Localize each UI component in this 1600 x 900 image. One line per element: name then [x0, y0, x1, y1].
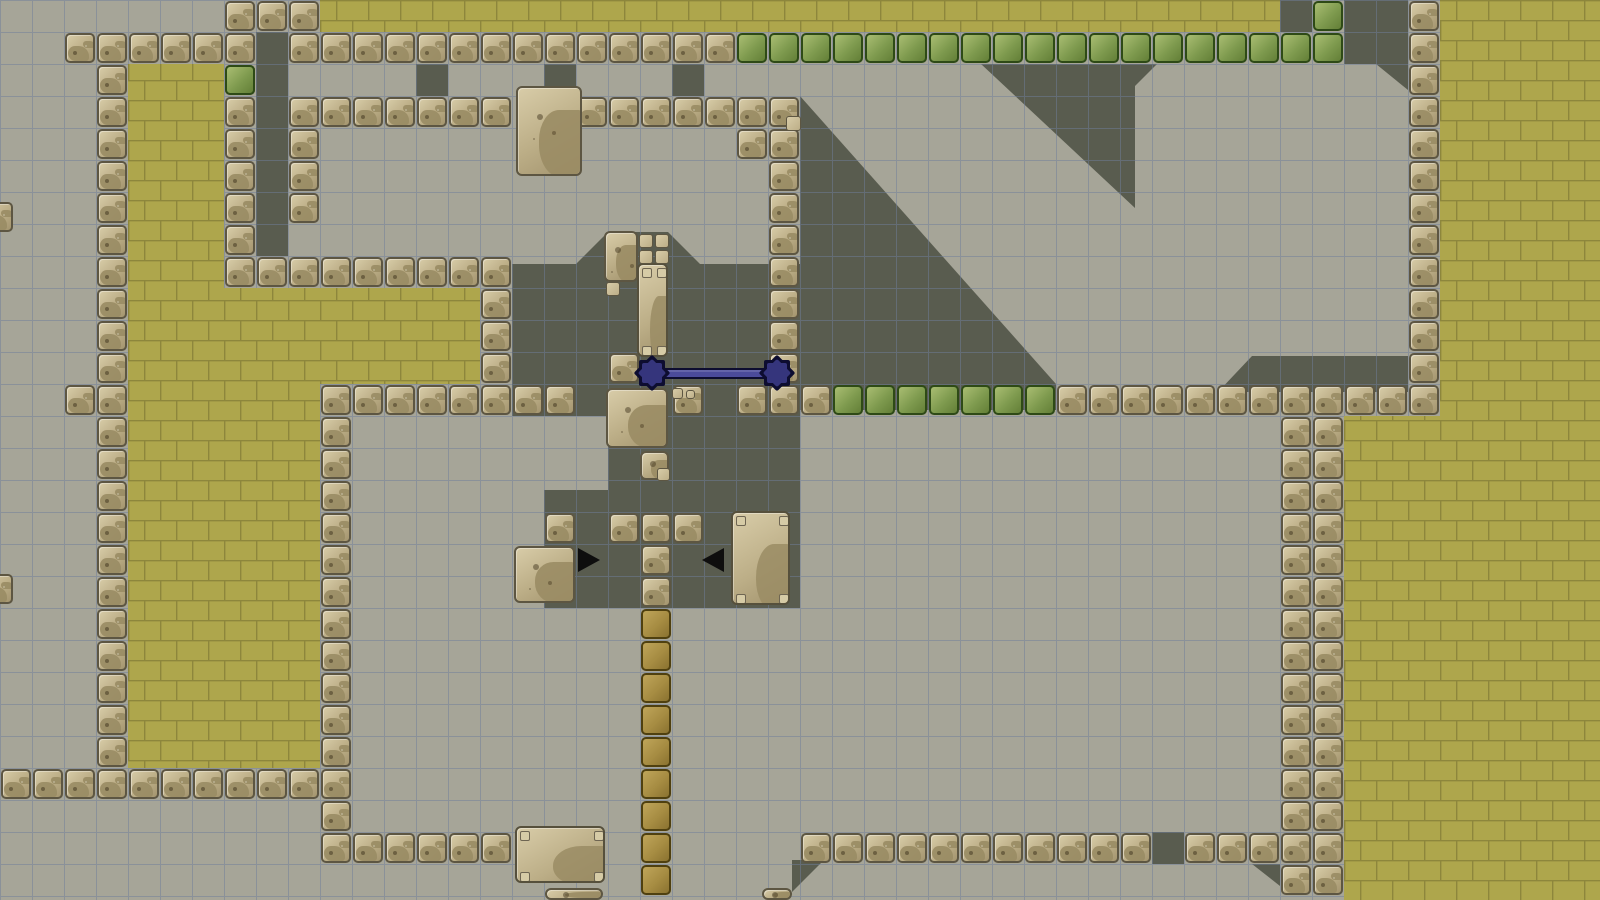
stone-tile [801, 833, 831, 863]
stone-tile [97, 513, 127, 543]
stone-tile [705, 33, 735, 63]
stone-tile [97, 161, 127, 191]
laser-anchor-core [642, 363, 662, 383]
stone-tile [161, 33, 191, 63]
stone-tile [1281, 417, 1311, 447]
stone-tile [257, 1, 287, 31]
stone-tile [1313, 577, 1343, 607]
green-tile [897, 385, 927, 415]
stone-tile [1409, 65, 1439, 95]
stone-tile [1249, 385, 1279, 415]
stone-tile [97, 737, 127, 767]
stone-tile [577, 33, 607, 63]
riveted-panel [637, 263, 668, 357]
rivet [520, 831, 530, 841]
stone-tile [481, 257, 511, 287]
stone-tile [385, 257, 415, 287]
green-tile [865, 33, 895, 63]
stone-tile [289, 769, 319, 799]
laser-anchor-core [767, 363, 787, 383]
stone-tile [641, 513, 671, 543]
rivet [657, 346, 667, 356]
green-tile [1185, 33, 1215, 63]
stone-tile [321, 737, 351, 767]
stone-tile [513, 385, 543, 415]
stone-tile [1313, 865, 1343, 895]
stone-tile [1281, 513, 1311, 543]
stone-tile [449, 33, 479, 63]
stone-tile [1185, 833, 1215, 863]
green-tile [961, 385, 991, 415]
stone-tile [33, 769, 63, 799]
stone-tile [65, 769, 95, 799]
stone-tile [769, 385, 799, 415]
stone-tile [1281, 801, 1311, 831]
stone-tile [1249, 833, 1279, 863]
stone-tile [1345, 385, 1375, 415]
stone-tile [385, 33, 415, 63]
stone-tile [353, 33, 383, 63]
stone-tile [321, 801, 351, 831]
stone-tile [993, 833, 1023, 863]
stone-tile [769, 161, 799, 191]
stone-tile [1409, 321, 1439, 351]
stone-tile [1313, 417, 1343, 447]
stone-tile [1313, 481, 1343, 511]
stone-tile [353, 257, 383, 287]
stone-tile [1313, 769, 1343, 799]
stone-tile [385, 385, 415, 415]
green-tile [737, 33, 767, 63]
green-tile [225, 65, 255, 95]
green-tile [769, 33, 799, 63]
gold-tile [641, 833, 671, 863]
stone-tile [1313, 449, 1343, 479]
stone-tile [1153, 385, 1183, 415]
stone-tile [65, 385, 95, 415]
stone-tile [321, 577, 351, 607]
green-tile [1057, 33, 1087, 63]
stone-tile [673, 513, 703, 543]
riveted-panel [731, 511, 790, 605]
stone-tile [737, 97, 767, 127]
stone-tile [1281, 865, 1311, 895]
green-tile [993, 33, 1023, 63]
stone-tile [481, 353, 511, 383]
stone-tile [321, 641, 351, 671]
green-tile [993, 385, 1023, 415]
stone-tile [1313, 673, 1343, 703]
stone-tile [513, 33, 543, 63]
stone-tile [1377, 385, 1407, 415]
stone-tile [417, 97, 447, 127]
stone-tile [929, 833, 959, 863]
brick-region [1344, 416, 1600, 900]
stone-tile [641, 545, 671, 575]
stone-tile [1281, 673, 1311, 703]
stone-tile [97, 193, 127, 223]
dirt-block [516, 86, 582, 176]
stone-tile [1281, 449, 1311, 479]
stone-tile [97, 225, 127, 255]
stone-tile [289, 97, 319, 127]
green-tile [929, 33, 959, 63]
stone-tile [321, 385, 351, 415]
stone-tile [353, 833, 383, 863]
stone-tile [289, 161, 319, 191]
stone-tile [1281, 769, 1311, 799]
stone-tile [129, 769, 159, 799]
green-tile [1089, 33, 1119, 63]
stone-tile [545, 513, 575, 543]
stone-tile [225, 257, 255, 287]
mini-block [655, 250, 669, 264]
mini-block [672, 388, 683, 399]
rivet [736, 594, 746, 604]
green-tile [1281, 33, 1311, 63]
stone-tile [1281, 545, 1311, 575]
stone-tile [1409, 353, 1439, 383]
stone-tile [97, 545, 127, 575]
gold-tile [641, 705, 671, 735]
stone-tile [449, 97, 479, 127]
stone-tile [65, 33, 95, 63]
stone-tile [481, 385, 511, 415]
stone-tile [1057, 833, 1087, 863]
stone-tile [321, 513, 351, 543]
mini-block [786, 116, 801, 131]
green-tile [1121, 33, 1151, 63]
dirt-block [606, 388, 668, 448]
stone-tile [641, 97, 671, 127]
stone-tile [705, 97, 735, 127]
stone-tile [1409, 289, 1439, 319]
stone-tile [97, 353, 127, 383]
gold-tile [641, 673, 671, 703]
stone-tile [161, 769, 191, 799]
rivet [736, 516, 746, 526]
green-tile [929, 385, 959, 415]
stone-tile [545, 33, 575, 63]
stone-tile [1121, 833, 1151, 863]
stone-tile [97, 481, 127, 511]
stone-tile [225, 193, 255, 223]
stone-tile [417, 257, 447, 287]
stone-tile [1409, 33, 1439, 63]
game-viewport[interactable] [0, 0, 1600, 900]
stone-tile [1217, 385, 1247, 415]
stone-tile [1281, 737, 1311, 767]
stone-tile [97, 65, 127, 95]
stone-tile [225, 769, 255, 799]
stone-tile [417, 833, 447, 863]
stone-tile [1121, 385, 1151, 415]
stone-tile [97, 385, 127, 415]
stone-tile [417, 385, 447, 415]
stone-tile [769, 225, 799, 255]
stone-tile [257, 257, 287, 287]
stone-tile [1281, 481, 1311, 511]
arrow-left-icon [702, 548, 724, 572]
stone-tile [225, 225, 255, 255]
stone-tile [449, 257, 479, 287]
stone-tile [225, 33, 255, 63]
stone-tile [1409, 193, 1439, 223]
stone-tile [97, 321, 127, 351]
stone-tile [609, 33, 639, 63]
stone-tile [225, 97, 255, 127]
green-tile [1025, 33, 1055, 63]
stone-tile [1025, 833, 1055, 863]
green-tile [833, 33, 863, 63]
stone-tile [481, 33, 511, 63]
stone-tile [289, 129, 319, 159]
stone-tile [1, 769, 31, 799]
stone-tile [321, 257, 351, 287]
stone-tile [321, 545, 351, 575]
stone-tile [385, 97, 415, 127]
green-tile [1249, 33, 1279, 63]
green-tile [865, 385, 895, 415]
stone-tile [1313, 385, 1343, 415]
stone-tile [1313, 545, 1343, 575]
stone-tile [641, 33, 671, 63]
rivet [779, 594, 789, 604]
stone-tile [897, 833, 927, 863]
mini-block [639, 250, 653, 264]
stone-tile [673, 97, 703, 127]
stone-tile [609, 97, 639, 127]
brick-region [224, 288, 480, 384]
stone-tile [353, 97, 383, 127]
stone-tile [737, 129, 767, 159]
stone-tile [609, 513, 639, 543]
stone-tile [321, 33, 351, 63]
stone-tile [1185, 385, 1215, 415]
riveted-panel [515, 826, 605, 883]
stone-tile [97, 129, 127, 159]
stone-tile [1409, 225, 1439, 255]
dirt-block [514, 546, 575, 603]
stone-tile [1089, 833, 1119, 863]
stone-tile [801, 385, 831, 415]
stone-tile [97, 33, 127, 63]
stone-tile [481, 833, 511, 863]
green-tile [1313, 1, 1343, 31]
stone-tile [289, 257, 319, 287]
stone-tile [769, 289, 799, 319]
gold-tile [641, 801, 671, 831]
edge-stone [0, 202, 13, 232]
stone-tile [289, 33, 319, 63]
stone-tile [321, 833, 351, 863]
brick-region [128, 64, 224, 768]
stone-tile [1409, 129, 1439, 159]
stone-tile [1281, 577, 1311, 607]
green-tile [961, 33, 991, 63]
green-tile [1153, 33, 1183, 63]
stone-tile [289, 193, 319, 223]
brick-region [1440, 0, 1600, 416]
green-tile [1217, 33, 1247, 63]
stone-tile [481, 321, 511, 351]
stone-tile [321, 417, 351, 447]
stone-tile [1409, 161, 1439, 191]
stone-tile [1217, 833, 1247, 863]
stone-tile [129, 33, 159, 63]
stone-tile [1313, 513, 1343, 543]
stone-tile [1313, 609, 1343, 639]
mini-block [686, 390, 695, 399]
stone-tile [193, 769, 223, 799]
stone-tile [545, 385, 575, 415]
stone-tile [321, 481, 351, 511]
gold-tile [641, 609, 671, 639]
stone-tile [449, 385, 479, 415]
stone-tile [769, 193, 799, 223]
stone-tile [609, 353, 639, 383]
gold-tile [641, 737, 671, 767]
stone-tile [97, 417, 127, 447]
edge-stone [0, 574, 13, 604]
stone-tile [97, 769, 127, 799]
rivet [657, 268, 667, 278]
stone-tile [481, 97, 511, 127]
rivet [779, 516, 789, 526]
stone-tile [1409, 97, 1439, 127]
stone-tile [97, 609, 127, 639]
stone-tile [1313, 833, 1343, 863]
stone-tile [769, 321, 799, 351]
stone-tile [1409, 257, 1439, 287]
stone-tile [961, 833, 991, 863]
rivet [594, 872, 604, 882]
stone-tile [673, 33, 703, 63]
stone-tile [1313, 641, 1343, 671]
stone-tile [481, 289, 511, 319]
stone-tile [321, 449, 351, 479]
mini-block [606, 282, 620, 296]
stone-tile [257, 769, 287, 799]
stone-tile [225, 1, 255, 31]
stone-tile [1281, 705, 1311, 735]
stone-tile [1313, 801, 1343, 831]
stone-tile [833, 833, 863, 863]
green-tile [833, 385, 863, 415]
stone-tile [225, 129, 255, 159]
stone-tile [641, 577, 671, 607]
green-tile [801, 33, 831, 63]
stone-tile [97, 289, 127, 319]
stone-tile [1089, 385, 1119, 415]
stone-tile [769, 129, 799, 159]
arrow-right-icon [578, 548, 600, 572]
stone-tile [1281, 385, 1311, 415]
green-tile [1313, 33, 1343, 63]
stone-tile [1281, 609, 1311, 639]
stone-tile [449, 833, 479, 863]
brick-region [224, 384, 320, 768]
stone-tile [97, 449, 127, 479]
mini-block [655, 234, 669, 248]
stone-tile [865, 833, 895, 863]
mini-block [657, 468, 670, 481]
stone-tile [321, 769, 351, 799]
stone-tile [321, 609, 351, 639]
stone-tile [321, 705, 351, 735]
stone-tile [1281, 833, 1311, 863]
stone-tile [1057, 385, 1087, 415]
green-tile [1025, 385, 1055, 415]
stone-tile [1409, 385, 1439, 415]
stone-tile [97, 577, 127, 607]
stone-tile [97, 257, 127, 287]
mini-block [639, 234, 653, 248]
stone-tile [97, 705, 127, 735]
stone-tile [289, 1, 319, 31]
stone-tile [225, 161, 255, 191]
stone-tile [321, 673, 351, 703]
stone-tile [1409, 1, 1439, 31]
stone-tile [769, 257, 799, 287]
stone-tile [1313, 737, 1343, 767]
stone-tile [321, 97, 351, 127]
stone-tile [1313, 705, 1343, 735]
dirt-block [762, 888, 792, 900]
stone-tile [385, 833, 415, 863]
gold-tile [641, 769, 671, 799]
gold-tile [641, 641, 671, 671]
stone-tile [97, 641, 127, 671]
stone-tile [417, 33, 447, 63]
dirt-block [604, 231, 638, 282]
stone-tile [737, 385, 767, 415]
stone-tile [97, 673, 127, 703]
green-tile [897, 33, 927, 63]
brick-region [320, 0, 1280, 32]
gold-tile [641, 865, 671, 895]
stone-tile [193, 33, 223, 63]
stone-tile [97, 97, 127, 127]
dirt-block [545, 888, 603, 900]
rivet [642, 268, 652, 278]
rivet [520, 872, 530, 882]
stone-tile [1281, 641, 1311, 671]
rivet [594, 831, 604, 841]
stone-tile [353, 385, 383, 415]
